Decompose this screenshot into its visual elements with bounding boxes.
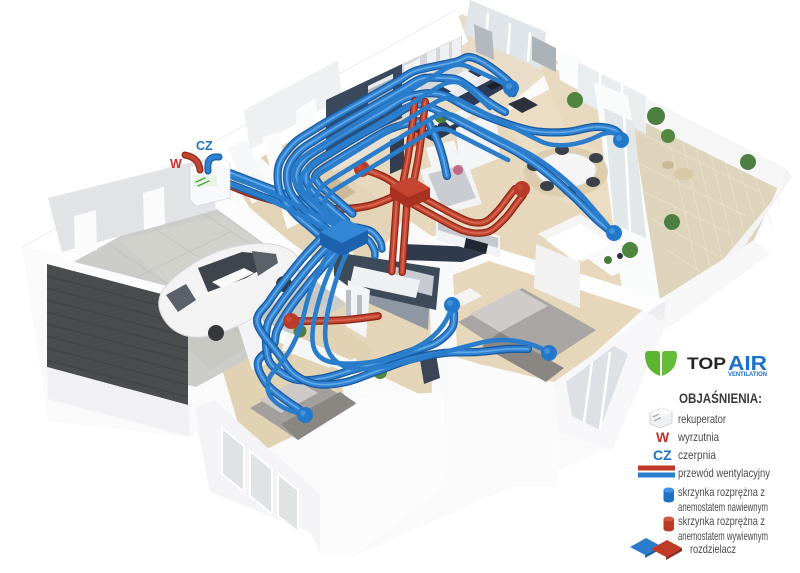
- svg-text:OBJAŚNIENIA:: OBJAŚNIENIA:: [679, 389, 762, 406]
- svg-text:rozdzielacz: rozdzielacz: [690, 542, 736, 556]
- svg-text:rekuperator: rekuperator: [678, 412, 726, 426]
- svg-text:CZ: CZ: [653, 447, 672, 463]
- svg-text:CZ: CZ: [196, 139, 213, 153]
- svg-text:TOP: TOP: [687, 354, 726, 373]
- svg-text:anemostatem wywiewnym: anemostatem wywiewnym: [678, 529, 768, 543]
- svg-text:czerpnia: czerpnia: [678, 448, 716, 462]
- svg-text:anemostatem nawiewnym: anemostatem nawiewnym: [678, 500, 768, 514]
- svg-text:skrzynka rozprężna z: skrzynka rozprężna z: [678, 485, 765, 499]
- svg-text:W: W: [656, 429, 670, 445]
- svg-text:skrzynka rozprężna z: skrzynka rozprężna z: [678, 514, 765, 528]
- svg-text:VENTILATION: VENTILATION: [728, 372, 767, 378]
- svg-text:przewód wentylacyjny: przewód wentylacyjny: [678, 466, 770, 480]
- svg-text:W: W: [170, 157, 182, 171]
- svg-text:wyrzutnia: wyrzutnia: [677, 430, 719, 444]
